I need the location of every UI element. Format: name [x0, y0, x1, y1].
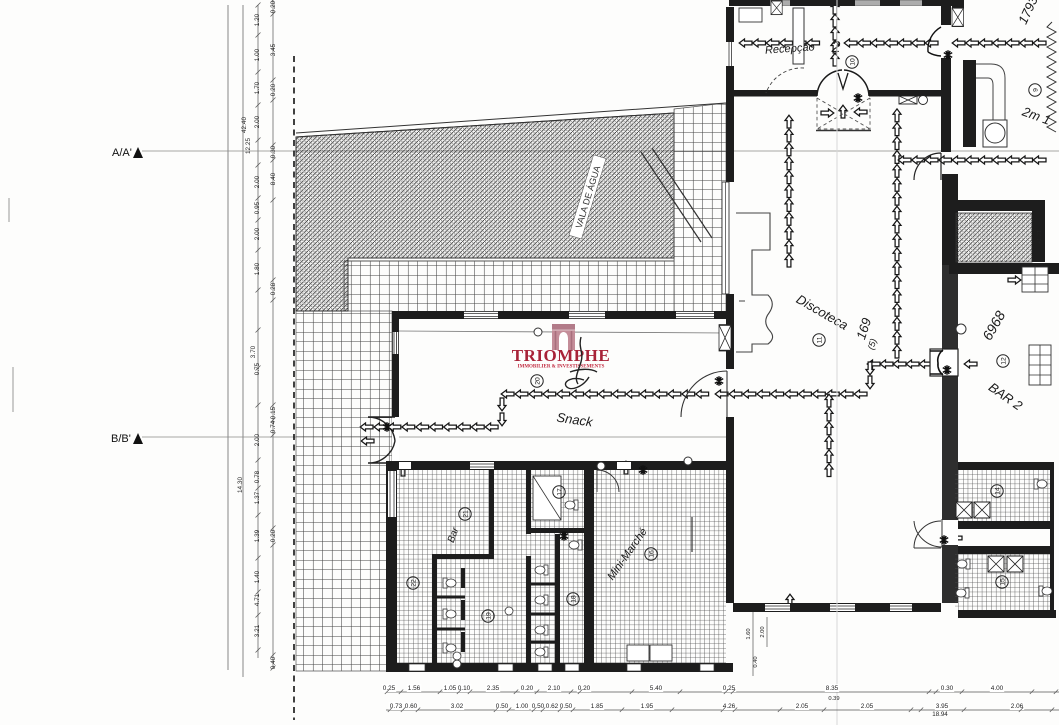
svg-text:1.00: 1.00: [516, 703, 529, 710]
svg-text:2.05: 2.05: [796, 703, 809, 710]
svg-text:3.21: 3.21: [254, 624, 261, 637]
svg-text:2.35: 2.35: [487, 685, 500, 692]
svg-text:4.00: 4.00: [991, 685, 1004, 692]
svg-text:14: 14: [994, 487, 1001, 495]
svg-text:18: 18: [570, 595, 577, 603]
svg-text:1.80: 1.80: [254, 262, 261, 275]
svg-text:2.00: 2.00: [254, 115, 261, 128]
svg-text:8.35: 8.35: [826, 685, 839, 692]
svg-text:0.40: 0.40: [753, 656, 759, 667]
svg-text:0.15: 0.15: [270, 406, 277, 419]
svg-text:0.28: 0.28: [270, 282, 277, 295]
svg-text:0.39: 0.39: [828, 696, 839, 702]
svg-text:1.20: 1.20: [254, 13, 261, 26]
svg-text:2.10: 2.10: [548, 685, 561, 692]
svg-text:14.30: 14.30: [237, 477, 244, 493]
svg-text:A/A': A/A': [112, 147, 132, 159]
svg-text:2.00: 2.00: [254, 227, 261, 240]
svg-text:10: 10: [849, 58, 856, 66]
svg-text:4.26: 4.26: [723, 703, 736, 710]
svg-text:2.00: 2.00: [760, 626, 766, 637]
svg-text:1.00: 1.00: [254, 48, 261, 61]
svg-text:42.40: 42.40: [241, 117, 248, 133]
svg-text:0.62: 0.62: [546, 703, 559, 710]
svg-text:9: 9: [1032, 88, 1039, 92]
svg-text:0.20: 0.20: [270, 83, 277, 96]
svg-text:0.30: 0.30: [941, 685, 954, 692]
svg-text:2: 2: [831, 39, 841, 56]
svg-text:1.70: 1.70: [254, 81, 261, 94]
svg-text:2.00: 2.00: [254, 433, 261, 446]
svg-text:21: 21: [462, 510, 469, 518]
svg-text:1.40: 1.40: [254, 570, 261, 583]
svg-text:1.56: 1.56: [408, 685, 421, 692]
svg-text:TRIOMPHE: TRIOMPHE: [512, 346, 610, 365]
svg-text:11: 11: [816, 336, 823, 343]
svg-text:8.40: 8.40: [270, 172, 277, 185]
svg-text:1.60: 1.60: [746, 628, 752, 639]
svg-text:5.40: 5.40: [650, 685, 663, 692]
svg-text:16: 16: [648, 550, 655, 558]
svg-text:18.94: 18.94: [932, 711, 948, 718]
svg-text:0.50: 0.50: [560, 703, 573, 710]
svg-text:1.05: 1.05: [444, 685, 457, 692]
svg-text:0.25: 0.25: [383, 685, 396, 692]
svg-text:0.20: 0.20: [578, 685, 591, 692]
svg-text:0.20: 0.20: [270, 529, 277, 542]
svg-text:0.20: 0.20: [521, 685, 534, 692]
svg-text:1.85: 1.85: [591, 703, 604, 710]
svg-text:3.70: 3.70: [250, 345, 257, 358]
svg-text:0.73: 0.73: [390, 703, 403, 710]
svg-text:0.78: 0.78: [254, 470, 261, 483]
svg-text:19: 19: [485, 612, 492, 620]
svg-text:3.45: 3.45: [270, 43, 277, 56]
svg-text:B/B': B/B': [111, 433, 131, 445]
svg-text:3.95: 3.95: [936, 703, 949, 710]
svg-text:+1.21: +1.21: [1037, 230, 1043, 244]
svg-text:22: 22: [410, 579, 417, 587]
svg-text:1.95: 1.95: [641, 703, 654, 710]
svg-text:0.50: 0.50: [532, 703, 545, 710]
svg-text:0.60: 0.60: [405, 703, 418, 710]
svg-text:12: 12: [1000, 357, 1007, 365]
svg-text:2.00: 2.00: [254, 175, 261, 188]
svg-text:0.95: 0.95: [254, 201, 261, 214]
svg-text:IMMOBILIER & INVESTISSEMENTS: IMMOBILIER & INVESTISSEMENTS: [518, 365, 605, 370]
svg-text:12.25: 12.25: [245, 138, 252, 154]
svg-text:0.50: 0.50: [496, 703, 509, 710]
svg-text:1.39: 1.39: [254, 529, 261, 542]
svg-text:1.37: 1.37: [254, 491, 261, 504]
svg-text:2.05: 2.05: [861, 703, 874, 710]
svg-text:17: 17: [556, 488, 563, 496]
svg-text:3.02: 3.02: [451, 703, 464, 710]
svg-text:4.71: 4.71: [254, 593, 261, 606]
svg-text:20: 20: [534, 377, 541, 385]
svg-text:15: 15: [999, 578, 1006, 586]
